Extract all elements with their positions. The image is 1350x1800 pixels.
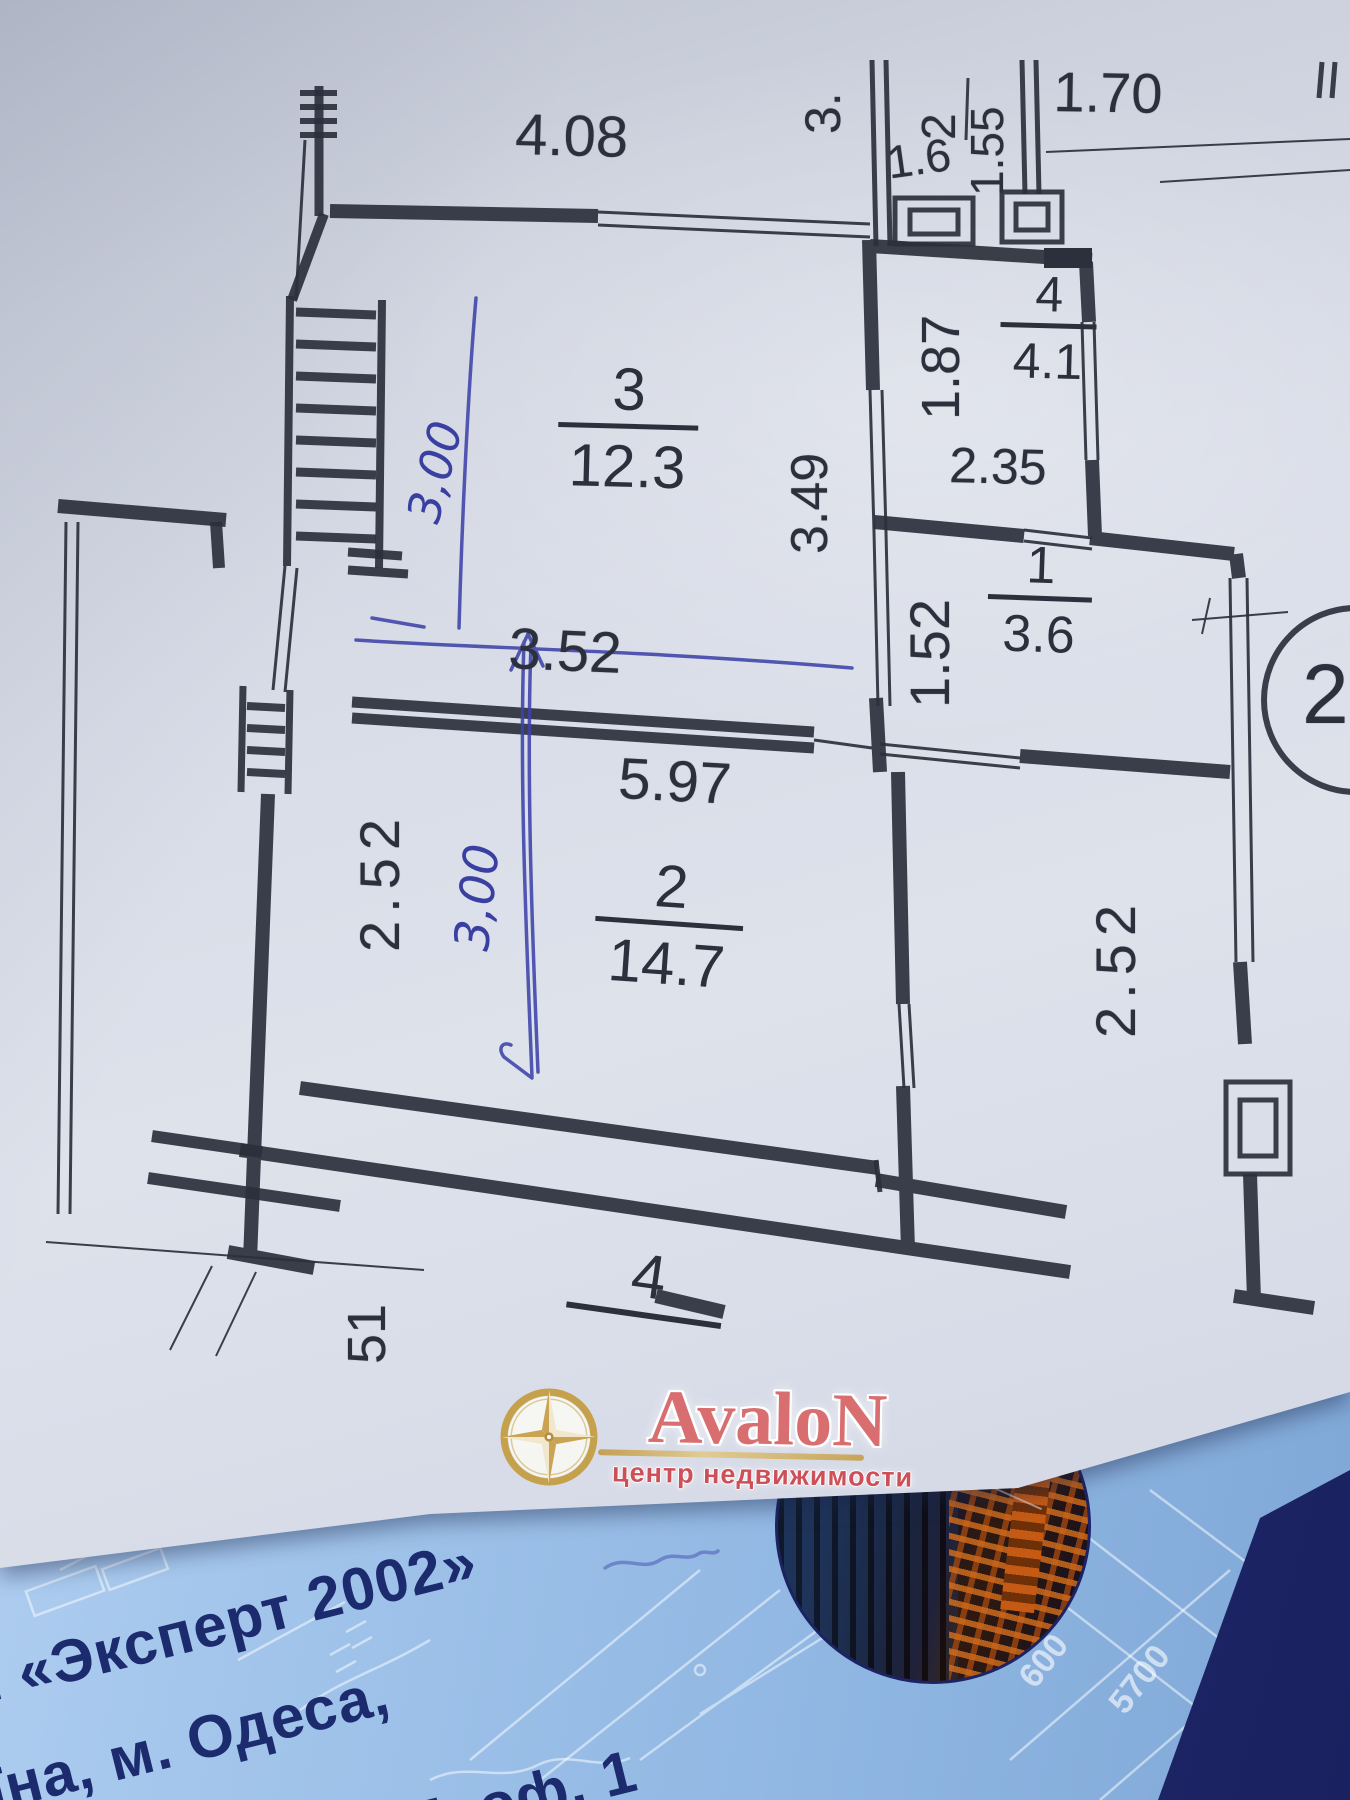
dim-vestibule-width: 1.6 <box>884 131 954 185</box>
night-lights <box>815 1396 821 1402</box>
dimension-labels: 4.08 3. 2 1.6 1.55 1.70 1.87 4 4.1 2.35 … <box>0 0 1350 1400</box>
room-number-vestibule: 2 <box>916 113 964 140</box>
room2-number: 2 <box>595 852 747 931</box>
building-facade <box>778 1371 958 1681</box>
room4-number: 4 <box>1000 268 1098 329</box>
room3-area: 12.3 <box>556 427 698 499</box>
dim-entry-width: 1.70 <box>1053 64 1163 122</box>
room4-label: 4 4.1 <box>999 268 1098 387</box>
room3-number: 3 <box>558 358 700 431</box>
dim-room4-depth: 1.87 <box>914 315 968 420</box>
room1-area: 3.6 <box>986 599 1092 663</box>
handwritten-width-note: 3,00 <box>400 417 469 528</box>
wall-block <box>1044 248 1092 268</box>
handwritten-height-note: 3,00 <box>448 842 507 953</box>
construction-photo <box>775 1368 1091 1684</box>
room1-number: 1 <box>988 538 1094 603</box>
room2-label: 2 14.7 <box>590 852 747 999</box>
callout-number: 2 <box>1302 652 1349 736</box>
dim-room3-depth: 3.49 <box>784 453 836 554</box>
dim-vestibule-left: 3. <box>798 92 848 134</box>
room2-area: 14.7 <box>590 921 742 999</box>
dim-room1-depth: 1.52 <box>902 599 958 708</box>
walls <box>46 60 1350 1356</box>
dim-opening-width: 3.52 <box>507 620 622 683</box>
dim-left-depth: 2.52 <box>352 811 408 952</box>
dim-top-width: 4.08 <box>514 106 628 167</box>
pen-annotation-lines <box>356 298 852 1078</box>
room1-label: 1 3.6 <box>986 538 1094 663</box>
dim-right-depth: 2.52 <box>1088 897 1144 1038</box>
callout-circle <box>1264 608 1350 792</box>
agency-flyer-card: 600 5700 П «Эксперт 2002» їна, м. Одеса,… <box>0 1240 1350 1800</box>
room4-area: 4.1 <box>999 327 1096 387</box>
floor-plan-drawing <box>0 0 1350 1400</box>
pen-scribble-on-card <box>605 1551 718 1568</box>
dim-room4-width: 2.35 <box>949 440 1048 493</box>
photographed-floor-plan: 600 5700 П «Эксперт 2002» їна, м. Одеса,… <box>0 0 1350 1800</box>
room3-label: 3 12.3 <box>556 358 700 499</box>
watermark-dim-5700: 5700 <box>1101 1638 1178 1721</box>
dim-corridor-width: 5.97 <box>617 750 733 814</box>
dim-vestibule-depth: 1.55 <box>964 106 1010 196</box>
door-symbols <box>895 192 1290 1174</box>
